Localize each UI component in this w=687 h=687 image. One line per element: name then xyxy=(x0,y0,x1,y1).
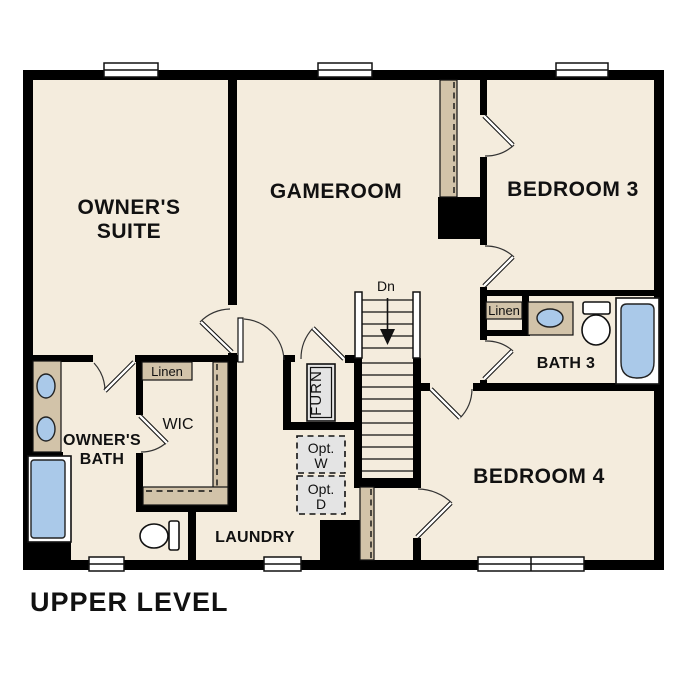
furnace-label: FURN xyxy=(308,370,325,416)
owners-bath-toilet xyxy=(140,521,179,550)
linen-hall-label: Linen xyxy=(151,364,183,379)
stairs-dn-label: Dn xyxy=(377,278,395,294)
gameroom-label: GAMEROOM xyxy=(270,180,402,203)
opt-dryer-label-line1: Opt. xyxy=(308,481,334,497)
wic-label: WIC xyxy=(162,416,193,433)
stair-half-wall xyxy=(360,487,374,560)
window xyxy=(318,63,372,77)
bath3-label: BATH 3 xyxy=(537,355,595,372)
window xyxy=(89,557,124,571)
owners-bath-label-line2: BATH xyxy=(80,451,124,468)
laundry-label: LAUNDRY xyxy=(215,529,295,546)
corner-pad xyxy=(23,540,71,570)
owners-suite-label-line2: SUITE xyxy=(97,220,161,243)
laundry-corner-pad xyxy=(320,520,360,565)
bedroom4-label: BEDROOM 4 xyxy=(473,465,605,488)
window xyxy=(556,63,608,77)
opt-dryer-label-line2: D xyxy=(316,496,326,512)
window xyxy=(104,63,158,77)
upper-level-floor-plan: OWNER'S SUITE GAMEROOM BEDROOM 3 BEDROOM… xyxy=(0,0,687,687)
owners-suite-label-line1: OWNER'S xyxy=(78,196,181,219)
room-gameroom xyxy=(237,80,438,355)
floor-plan-page: OWNER'S SUITE GAMEROOM BEDROOM 3 BEDROOM… xyxy=(0,0,687,687)
bedroom3-label: BEDROOM 3 xyxy=(507,178,639,201)
opt-washer-label-line1: Opt. xyxy=(308,440,334,456)
opt-washer-label-line2: W xyxy=(314,455,328,471)
plan-title: UPPER LEVEL xyxy=(30,587,229,617)
owners-bath-label-line1: OWNER'S xyxy=(63,432,141,449)
linen-bath3-label: Linen xyxy=(488,303,520,318)
chase-block xyxy=(438,197,487,239)
